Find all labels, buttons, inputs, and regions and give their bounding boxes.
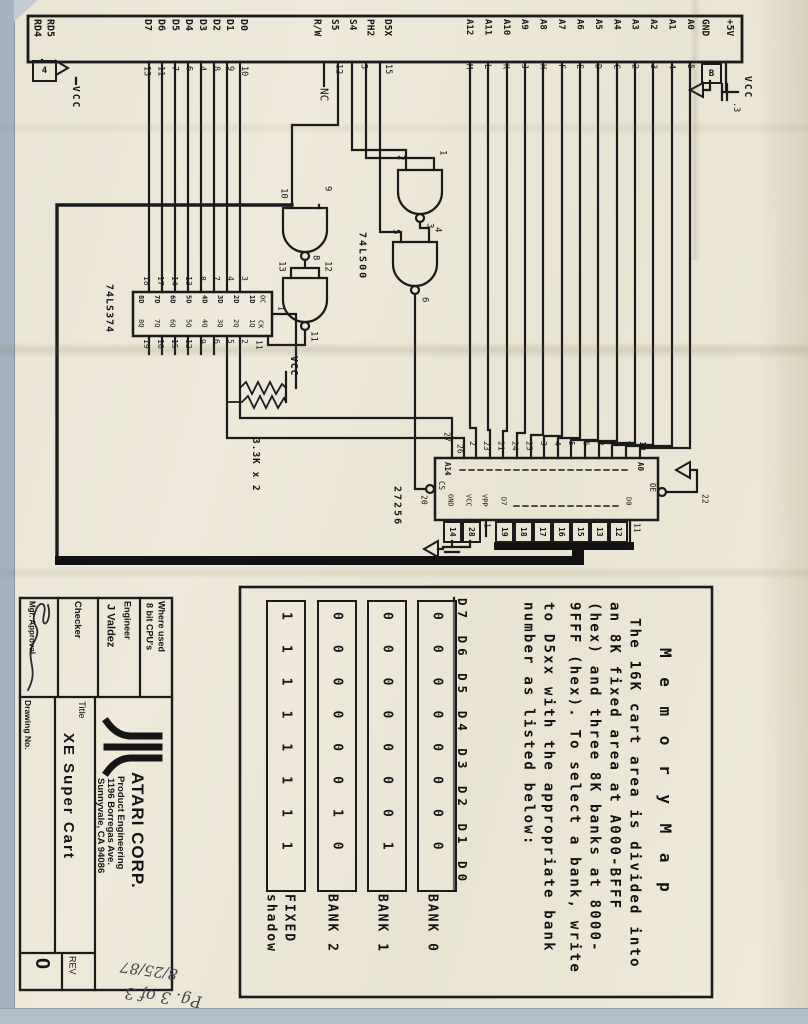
latch-d-label: 5D <box>185 295 192 303</box>
bank0-bits: 00000000 <box>430 602 445 875</box>
eprom-cs-label: CS <box>437 481 445 490</box>
connector-data-labels: D7D6D5D4D3D2D1D0 <box>142 19 248 55</box>
pin-number: 21 <box>496 441 504 451</box>
addr-line-label: A6 <box>574 19 583 30</box>
addr-line-label: A12 <box>464 19 473 35</box>
eprom-vpp-pin: 1 <box>482 523 490 528</box>
latch-output-labels: 8Q7Q6Q5Q4Q3Q2Q1Q <box>137 319 255 333</box>
memory-map-line-6: number as listed below: <box>521 602 536 994</box>
gate-a-in2-pin: 1 <box>437 150 446 155</box>
left-vcc-label: VCC <box>70 86 80 109</box>
fixed-bits-box: 11111111 <box>266 600 306 892</box>
fixed-bits: 11111111 <box>279 602 294 875</box>
data-line-label: D6 <box>156 19 166 31</box>
data-pin-numbers: 13117648910 <box>142 66 248 86</box>
nand-gate-a-bubble <box>416 214 424 222</box>
ctrl-pin-numbers: 12515 <box>334 64 392 82</box>
data-line-label: D1 <box>224 19 234 31</box>
power-label: GND <box>700 19 710 36</box>
pin-number: 10 <box>239 66 248 76</box>
gate-c-in1-pin: 10 <box>278 188 287 199</box>
pin-number: 4 <box>667 64 676 69</box>
d5x-wire <box>380 62 401 242</box>
mgr-approval-label: Mgr. Approval <box>27 601 35 654</box>
ctrl-line-label: S4 <box>347 19 357 30</box>
eprom-ground-symbol <box>424 541 438 557</box>
bank2-bits-box: 00000010 <box>317 600 357 892</box>
ctrl-line-label: S5 <box>330 19 340 30</box>
pin-number: 9 <box>198 339 206 344</box>
nand-gate-d <box>283 278 327 322</box>
eprom-d0-pin: 11 <box>632 523 640 533</box>
latch-d-label: 2D <box>232 295 239 303</box>
latch-q-label: 8Q <box>137 319 144 327</box>
latch-q-label: 1Q <box>248 319 255 327</box>
ctrl-line-label: PH2 <box>365 19 375 36</box>
bank1-bits: 00000001 <box>380 602 395 875</box>
oe-ground-symbol <box>676 462 690 478</box>
pin-number: 13 <box>184 276 192 286</box>
gate-d-output-wire <box>268 330 305 345</box>
pullup-vcc-label: VCC <box>288 356 298 376</box>
addr-line-label: A2 <box>648 19 657 30</box>
pin-number-box: 14 <box>443 521 462 543</box>
nand-gate-d-bubble <box>301 322 309 330</box>
nand-gate-b-bubble <box>411 286 419 294</box>
pin-number: 5 <box>685 64 694 69</box>
eprom-vcc-label: VCC <box>464 494 471 507</box>
nand-gate-c <box>283 208 327 252</box>
gate-b-out-pin: 6 <box>419 297 428 302</box>
company-dept: Product Engineering <box>115 776 125 869</box>
eprom-vpp-label: VPP <box>480 494 487 507</box>
eprom-power-pin-boxes: 1428 <box>443 521 480 543</box>
eprom-a14-pin: 27 <box>442 432 450 442</box>
pin-number-box: 19 <box>495 521 514 543</box>
pin-number: 14 <box>170 276 178 286</box>
drawing-title: XE Super Cart <box>60 733 76 860</box>
eprom-oe-pin: 22 <box>700 494 708 504</box>
data-line-label: D7 <box>142 19 152 31</box>
rev-label: REV <box>67 956 76 975</box>
company-address-1: 1196 Borregas Ave. <box>105 778 115 865</box>
pin-number-box: 12 <box>609 521 628 543</box>
eprom-gnd-label: GND <box>446 494 453 507</box>
connector-addr-labels: A12A11A10A9A8A7A6A5A4A3A2A1A0 <box>464 19 694 55</box>
pin-number: 8 <box>212 66 221 71</box>
data-line-label: D5 <box>169 19 179 31</box>
memory-map-line-2: an 8K fixed area at A000-BFFF <box>607 602 622 994</box>
gate-b-output-wire <box>415 294 426 489</box>
latch-top-pin-numbers: 181714138743 <box>142 276 248 291</box>
bypass-cap-plates <box>443 547 461 552</box>
memory-map-line-5: to D5xx with the appropriate bank <box>541 602 556 994</box>
eprom-d0-label: D0 <box>624 497 631 505</box>
data-line-label: D3 <box>197 19 207 31</box>
pin-number: 5 <box>226 339 234 344</box>
latch-chip-label: 74LS374 <box>103 284 114 333</box>
rev-value: 0 <box>31 958 52 969</box>
latch-d-label: 4D <box>200 295 207 303</box>
right-ground-symbol <box>690 83 703 97</box>
nand-chip-label: 74LS00 <box>356 232 367 280</box>
plus5v-wire <box>722 62 738 92</box>
nc-label: NC <box>318 88 330 101</box>
latch-d-label: 1D <box>248 295 255 303</box>
latch-oc-pin: 1 <box>276 306 284 311</box>
pin-number: H <box>538 64 547 69</box>
pin-number: 24 <box>510 441 518 451</box>
pullup-value-label: 3.3K x 2 <box>250 438 260 492</box>
bank1-label: BANK 1 <box>375 894 389 953</box>
latch-bottom-pin-numbers: 191615129652 <box>142 339 248 354</box>
pin-number: C <box>612 64 621 69</box>
pin-number-box: 17 <box>533 521 552 543</box>
gate-b-in2-pin: 4 <box>432 227 441 232</box>
gate-c-in2-pin: 9 <box>322 186 331 191</box>
nand-gate-c-bubble <box>301 252 309 260</box>
pin-number: 7 <box>595 441 603 446</box>
gate-b-in1-pin: 5 <box>390 229 399 234</box>
ctrl-line-label: R/W <box>312 19 322 36</box>
pin-number: J <box>519 64 528 69</box>
pin-number: F <box>556 64 565 69</box>
pin-number: 2 <box>468 441 476 446</box>
pin-number: 19 <box>142 339 150 349</box>
pin-number: 4 <box>553 441 561 446</box>
power-label: +5V <box>725 19 735 36</box>
addr-line-label: A8 <box>538 19 547 30</box>
pin-number: 2 <box>630 64 639 69</box>
pin-number: 5 <box>359 64 368 69</box>
latch-d-label: 6D <box>169 295 176 303</box>
latch-q-label: 3Q <box>216 319 223 327</box>
data-bus-wires <box>149 62 240 292</box>
data-line-label: D0 <box>238 19 248 31</box>
memory-map-line-1: The 16K cart area is divided into <box>627 602 642 1010</box>
pin-number: 23 <box>482 441 490 451</box>
pin-number: 25 <box>525 441 533 451</box>
pin-number: 8 <box>610 441 618 446</box>
addr-line-label: A10 <box>501 19 510 35</box>
pullup-resistor-1 <box>240 382 286 394</box>
memory-map-line-4: 9FFF (hex). To select a bank, write <box>567 602 582 994</box>
pin-number: 6 <box>212 339 220 344</box>
latch-q-label: 5Q <box>185 319 192 327</box>
pin-number-box: 18 <box>514 521 533 543</box>
pin-number-box: 28 <box>462 521 481 543</box>
connector-label-rd5: RD5 <box>44 19 55 37</box>
pin-number: 13 <box>142 66 151 76</box>
connector-label-rd4: RD4 <box>31 19 42 37</box>
connector-power-labels: GND+5V <box>700 19 734 59</box>
pin-number: 4 <box>226 276 234 281</box>
pin-number: 7 <box>212 276 220 281</box>
title-label: Title <box>76 701 86 719</box>
latch-q-label: 7Q <box>153 319 160 327</box>
data-bus-run <box>55 556 584 565</box>
pin-number-box: 13 <box>590 521 609 543</box>
addr-line-label: A5 <box>593 19 602 30</box>
latch-d-label: 3D <box>216 295 223 303</box>
fixed-label: FIXED <box>282 894 296 943</box>
pin-number: 11 <box>156 66 165 76</box>
gate-d-in2-pin: 12 <box>322 261 331 272</box>
company-address-2: Sunnyvale, CA 94086 <box>95 778 105 873</box>
addr-line-label: A4 <box>611 19 620 30</box>
gate-a-in1-pin: 2 <box>395 155 404 160</box>
eprom-a0-label: A0 <box>636 462 644 471</box>
pin-number: 10 <box>638 441 646 451</box>
addr-line-label: A7 <box>556 19 565 30</box>
scanned-schematic-page: RD4 RD5 D7D6D5D4D3D2D1D0 R/WS5S4PH2D5X A… <box>0 0 808 1024</box>
pin-number: K <box>501 64 510 69</box>
checker-label: Checker <box>72 601 82 639</box>
gate-c-to-d-wires <box>291 260 319 278</box>
pin-number: 15 <box>170 339 178 349</box>
eprom-a13-pin: 26 <box>455 444 463 454</box>
engineer-name: J Valdez <box>104 604 116 647</box>
gate-d-in1-pin: 13 <box>276 261 285 272</box>
data-line-label: D2 <box>211 19 221 31</box>
latch-d-label: 7D <box>153 295 160 303</box>
fixed-label-2: shadow <box>264 894 278 953</box>
cap-value-label: .3 <box>731 102 740 112</box>
pin-number: 16 <box>156 339 164 349</box>
bank2-bits: 00000010 <box>330 602 345 875</box>
data-bus-bar <box>494 542 634 550</box>
company-name: ATARI CORP. <box>128 772 146 889</box>
pin-number: 9 <box>624 441 632 446</box>
engineer-label: Engineer <box>122 601 131 640</box>
address-bus-wires <box>470 62 690 458</box>
eprom-data-pin-boxes: 19181716151312 <box>495 521 625 543</box>
bank2-label: BANK 2 <box>325 894 339 953</box>
pin-number: 17 <box>156 276 164 286</box>
gate-d-out-pin: 11 <box>308 331 317 342</box>
latch-clk-label: CK <box>256 320 263 328</box>
eprom-a14-label: A14 <box>443 462 451 476</box>
pin-number: 3 <box>649 64 658 69</box>
latch-clk-pin: 11 <box>254 340 262 350</box>
pin-number: 9 <box>226 66 235 71</box>
addr-line-label: A9 <box>519 19 528 30</box>
memory-map-line-3: (hex) and three 8K banks at 8000- <box>587 602 602 994</box>
pin-number: 6 <box>184 66 193 71</box>
eprom-cs-pin: 20 <box>419 495 427 505</box>
addr-line-label: A0 <box>685 19 694 30</box>
pullup-resistor-2 <box>227 396 286 408</box>
eprom-outline <box>435 458 658 520</box>
pin-number: M <box>464 64 473 69</box>
eprom-cs-bubble <box>426 485 434 493</box>
pin-number: 12 <box>184 339 192 349</box>
addr-line-label: A3 <box>630 19 639 30</box>
latch-q-to-a13 <box>227 336 464 458</box>
pin-number: 5 <box>567 441 575 446</box>
gate-c-out-pin: 8 <box>310 255 319 260</box>
latch-input-labels: 8D7D6D5D4D3D2D1D <box>137 295 255 309</box>
pin-number-box: 16 <box>552 521 571 543</box>
atari-fuji-logo <box>107 722 159 772</box>
pin-number-box: 15 <box>571 521 590 543</box>
pin-number: L <box>482 64 491 69</box>
nand-gate-a <box>398 170 442 214</box>
nand-gate-b <box>393 242 437 286</box>
latch-oc-label: OC <box>258 295 265 303</box>
eprom-d7-label: D7 <box>499 497 506 505</box>
pin-number: 6 <box>581 441 589 446</box>
left-pin-box: 4 <box>32 60 57 82</box>
pin-number: 12 <box>334 64 343 74</box>
eprom-addr-pin-numbers: 223212425345678910 <box>468 441 646 455</box>
bank0-label: BANK 0 <box>425 894 439 953</box>
eprom-chip-label: 27256 <box>391 486 402 526</box>
where-used-value: 8 bit CPU's <box>144 603 153 650</box>
bank0-bits-box: 00000000 <box>417 600 457 892</box>
eprom-oe-label: OE <box>648 483 656 492</box>
pin-number: 15 <box>384 64 393 74</box>
where-used-label: Where used <box>156 601 165 652</box>
latch-q-label: 4Q <box>200 319 207 327</box>
s5-wire <box>292 62 338 205</box>
pin-number: D <box>593 64 602 69</box>
pin-number: 8 <box>198 276 206 281</box>
latch-q-label: 6Q <box>169 319 176 327</box>
pin-number: 4 <box>198 66 207 71</box>
pin-number: 2 <box>240 339 248 344</box>
bank-table-header: D7 D6 D5 D4 D3 D2 D1 D0 <box>456 598 469 890</box>
pin-number: 18 <box>142 276 150 286</box>
pin-number: 3 <box>539 441 547 446</box>
addr-pin-numbers: MLKJHFEDC2345 <box>464 64 694 82</box>
pin-number: E <box>575 64 584 69</box>
b-pin-box: B <box>701 63 722 84</box>
ctrl-line-label: D5X <box>383 19 393 36</box>
drawing-no-label: Drawing No. <box>23 700 32 750</box>
memory-map-title: M e m o r y M a p <box>656 648 673 948</box>
latch-d-label: 8D <box>137 295 144 303</box>
addr-line-label: A1 <box>666 19 675 30</box>
data-line-label: D4 <box>183 19 193 31</box>
latch-oc-stub <box>272 314 296 388</box>
addr-line-label: A11 <box>482 19 491 35</box>
right-vcc-label: VCC <box>742 76 752 99</box>
latch-q-label: 2Q <box>232 319 239 327</box>
pin-number: 3 <box>240 276 248 281</box>
pin-number: 7 <box>170 66 179 71</box>
bank1-bits-box: 00000001 <box>367 600 407 892</box>
connector-ctrl-labels: R/WS5S4PH2D5X <box>312 19 392 59</box>
